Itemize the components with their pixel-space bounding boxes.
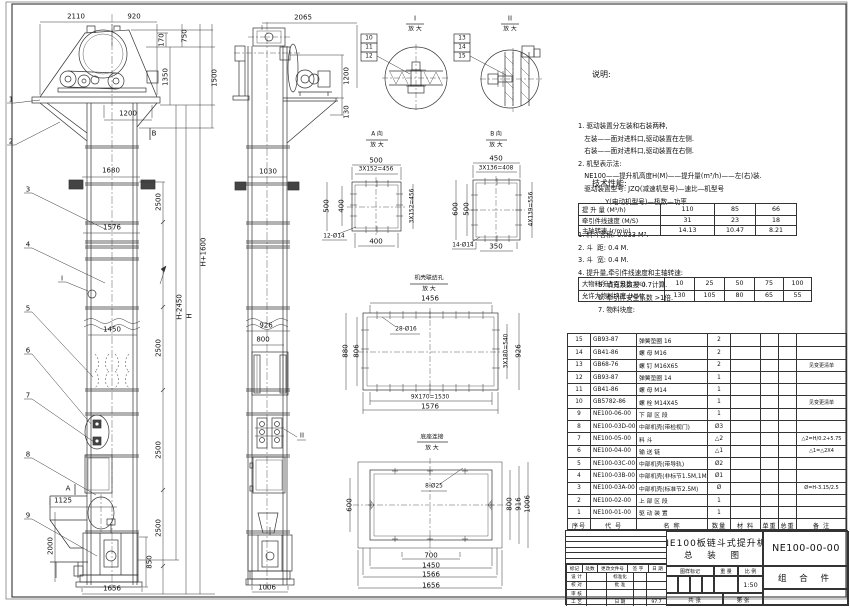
- dimension-label: 1576: [421, 404, 439, 411]
- bom-cell: [778, 494, 796, 506]
- sign-cell: [586, 581, 606, 590]
- section-A-view: [322, 140, 413, 248]
- bom-cell: Ø=H-3.15/2.5: [796, 482, 846, 494]
- bom-cell: 中部机壳(带导轨): [636, 457, 707, 469]
- dimension-label: 2500: [156, 519, 163, 537]
- bom-cell: [796, 371, 846, 383]
- dimension-label: 2: [9, 139, 13, 146]
- dimension-label: 880: [343, 344, 350, 357]
- dimension-label: 1125: [54, 498, 72, 505]
- table-cell: 大物料所占百分比 (%): [579, 278, 664, 290]
- bom-cell: [730, 445, 760, 457]
- bom-cell: 2: [707, 346, 730, 358]
- dimension-label: 3: [26, 187, 30, 194]
- bom-header-cell: 单重: [760, 518, 778, 530]
- dimension-label: 800: [256, 337, 269, 344]
- bom-cell: 1: [568, 506, 590, 518]
- bom-cell: [730, 334, 760, 346]
- dimension-label: A: [66, 486, 71, 493]
- bom-cell: NE100-03D-00: [590, 420, 636, 432]
- bom-cell: 6: [568, 445, 590, 457]
- bom-cell: [730, 482, 760, 494]
- drawing-sheet: 2110920170750135015001200B168025001576H+…: [0, 0, 850, 609]
- bom-cell: 螺 栓 M14X45: [636, 395, 707, 407]
- dimension-label: 920: [127, 14, 140, 21]
- bom-cell: [778, 371, 796, 383]
- sheet-number-label: 第 张: [723, 593, 763, 606]
- bom-cell: [796, 334, 846, 346]
- dimension-label: 916: [516, 497, 523, 510]
- bom-cell: [760, 408, 778, 420]
- dimension-label: I: [61, 276, 63, 283]
- bom-cell: NE100-03C-00: [590, 457, 636, 469]
- dimension-label: 放 大: [425, 446, 438, 453]
- bom-cell: 输 送 链: [636, 445, 707, 457]
- revision-header-cell: 签 字: [627, 564, 648, 572]
- dimension-label: 1656: [103, 586, 121, 593]
- table-cell: 10.47: [714, 225, 755, 236]
- bom-cell: [778, 408, 796, 420]
- bom-cell: [778, 469, 796, 481]
- bom-cell: 1: [707, 383, 730, 395]
- note-line: 1. 驱动装置分左装和右装两种,: [578, 120, 762, 133]
- sign-cell: 97.7: [646, 598, 666, 607]
- bom-cell: 弹簧垫圈 14: [636, 371, 707, 383]
- bom-cell: GB41-86: [590, 383, 636, 395]
- dimension-label: H: [187, 313, 194, 318]
- dimension-label: 5: [26, 306, 30, 313]
- dimension-label: 11: [365, 45, 372, 52]
- bom-cell: GB93-87: [590, 334, 636, 346]
- table-cell: 55: [783, 290, 811, 302]
- bom-cell: NE100-03B-00: [590, 469, 636, 481]
- bom-cell: [778, 346, 796, 358]
- revision-header-row: 标记处数更改文件号签 字日 期: [566, 564, 666, 572]
- bom-cell: 料 斗: [636, 432, 707, 444]
- bom-cell: Ø1: [707, 469, 730, 481]
- bom-header-cell: 备 注: [796, 518, 846, 530]
- table-cell: 100: [783, 278, 811, 290]
- sign-cell: [646, 572, 666, 581]
- bom-cell: [760, 371, 778, 383]
- side-elevation-view: [233, 22, 338, 590]
- dimension-label: 3X136=408: [479, 166, 514, 173]
- bom-cell: [796, 494, 846, 506]
- dimension-label: 1566: [422, 572, 440, 579]
- bom-cell: 13: [568, 359, 590, 371]
- bom-cell: [778, 359, 796, 371]
- bom-cell: 螺 母 M14: [636, 383, 707, 395]
- bom-cell: 弹簧垫圈 16: [636, 334, 707, 346]
- bom-cell: [760, 506, 778, 518]
- bom-cell: [796, 408, 846, 420]
- dimension-label: 9: [26, 513, 30, 520]
- bom-cell: 1: [707, 494, 730, 506]
- dimension-label: 14: [458, 45, 465, 52]
- scale-value: 1:50: [738, 576, 763, 593]
- dimension-label: H+1600: [201, 238, 208, 267]
- bom-cell: NE100-03A-00: [590, 482, 636, 494]
- dimension-label: 400: [369, 239, 382, 246]
- bom-cell: [760, 432, 778, 444]
- dimension-label: 1006: [525, 495, 532, 513]
- dimension-label: 1656: [422, 583, 440, 590]
- dimension-label: 放 大: [370, 143, 383, 150]
- sign-cell: [586, 589, 606, 598]
- dimension-label: 1500: [212, 69, 219, 87]
- dimension-label: 450: [489, 156, 502, 163]
- bom-cell: NE100-02-00: [590, 494, 636, 506]
- sign-cell: [646, 589, 666, 598]
- bom-cell: 10: [568, 395, 590, 407]
- table-cell: 105: [694, 290, 724, 302]
- dimension-label: 3X180=540: [504, 334, 511, 369]
- bom-cell: 1: [707, 506, 730, 518]
- bom-cell: 驱 动 装 置: [636, 506, 707, 518]
- sign-cell: 工 艺: [566, 598, 586, 607]
- bom-cell: NE100-04-00: [590, 445, 636, 457]
- bom-cell: NE100-06-00: [590, 408, 636, 420]
- product-title: NE100板链斗式提升机: [666, 536, 763, 549]
- bom-cell: 中部机壳(标准节2.5M): [636, 482, 707, 494]
- bom-cell: 11: [568, 383, 590, 395]
- sheets-total-label: 共 张: [666, 593, 723, 606]
- dimension-label: 600: [453, 202, 460, 215]
- table-cell: 31: [660, 215, 714, 226]
- table-cell: 50: [724, 278, 754, 290]
- mark-box-3: [690, 576, 702, 593]
- bom-cell: [796, 506, 846, 518]
- dimension-label: 500: [324, 199, 331, 212]
- bom-cell: [760, 395, 778, 407]
- sign-cell: 设 计: [566, 572, 586, 581]
- dimension-label: 926: [516, 344, 523, 357]
- dimension-label: 3X152=456: [359, 167, 394, 174]
- dimension-label: 170: [159, 33, 166, 46]
- bom-header-cell: 数量: [707, 518, 730, 530]
- bom-cell: [778, 457, 796, 469]
- dimension-label: 1450: [103, 327, 121, 334]
- bom-cell: [778, 420, 796, 432]
- bom-cell: [760, 383, 778, 395]
- sign-cell: [633, 598, 646, 607]
- dimension-label: 6: [26, 348, 30, 355]
- bom-cell: [796, 346, 846, 358]
- sign-cell: [633, 572, 646, 581]
- dimension-label: H-2450: [177, 294, 184, 320]
- bom-cell: [730, 457, 760, 469]
- bom-header-cell: 名 称: [636, 518, 707, 530]
- dimension-label: II: [508, 16, 512, 23]
- bill-of-materials-table: 15GB93-87弹簧垫圈 16214GB41-86螺 母 M16213GB68…: [567, 333, 847, 530]
- bom-cell: [796, 457, 846, 469]
- bom-cell: [730, 383, 760, 395]
- dimension-label: 350: [489, 244, 502, 251]
- bom-cell: Ø3: [707, 420, 730, 432]
- bom-cell: 2: [707, 359, 730, 371]
- bom-cell: [760, 346, 778, 358]
- dimension-label: 13: [458, 36, 465, 43]
- bom-cell: [778, 482, 796, 494]
- table-cell: 允许大物料块度 (MM): [579, 290, 664, 302]
- table-cell: 23: [714, 215, 755, 226]
- sign-row: 设 计标准化: [566, 572, 666, 581]
- bom-cell: [778, 432, 796, 444]
- bom-cell: 7: [568, 432, 590, 444]
- bom-cell: [760, 457, 778, 469]
- front-elevation-dimensions: [7, 22, 215, 594]
- sign-row: 校 对批 准: [566, 581, 666, 590]
- sign-cell: [633, 589, 646, 598]
- bom-header-cell: 序号: [568, 518, 590, 530]
- dimension-label: A 向: [371, 132, 383, 139]
- dimension-label: 1: [9, 97, 13, 104]
- bom-cell: △2=H/0.2+5.75: [796, 432, 846, 444]
- bom-cell: △1: [707, 445, 730, 457]
- table-cell: 110: [660, 204, 714, 215]
- bom-cell: 见变更清单: [796, 395, 846, 407]
- bom-cell: 4: [568, 469, 590, 481]
- bom-cell: 3: [568, 482, 590, 494]
- bom-header-cell: 材 料: [730, 518, 760, 530]
- front-elevation-view: [32, 14, 160, 590]
- drawing-title-box: NE100板链斗式提升机 总 装 图: [666, 531, 763, 566]
- dimension-label: 2000: [48, 537, 55, 555]
- dimension-label: 8-Ø25: [425, 484, 443, 491]
- bom-cell: [796, 469, 846, 481]
- dimension-label: 14-Ø14: [452, 243, 473, 250]
- bom-cell: [778, 395, 796, 407]
- bom-cell: 上 部 区 段: [636, 494, 707, 506]
- lump-size-table: 大物料所占百分比 (%)10255075100允许大物料块度 (MM)13010…: [578, 277, 812, 302]
- bom-cell: 1: [707, 395, 730, 407]
- dimension-label: 28-Ø16: [395, 327, 416, 334]
- bom-cell: 见变更清单: [796, 359, 846, 371]
- dimension-label: 放 大: [503, 27, 516, 34]
- drawing-type: 总 装 图: [684, 549, 745, 561]
- table-cell: 130: [664, 290, 694, 302]
- bom-cell: [760, 494, 778, 506]
- weight-label: 重 量: [714, 566, 738, 576]
- mark-box-4: [702, 576, 714, 593]
- bom-cell: △2: [707, 432, 730, 444]
- bom-cell: [730, 408, 760, 420]
- dimension-label: 1680: [102, 168, 120, 175]
- bom-cell: [730, 395, 760, 407]
- dimension-label: 放 大: [422, 287, 435, 294]
- bom-cell: 2: [568, 494, 590, 506]
- bom-cell: [778, 383, 796, 395]
- revision-header-cell: 处数: [582, 564, 597, 572]
- sign-cell: [646, 581, 666, 590]
- dimension-label: 400: [339, 199, 346, 212]
- sign-cell: 审 核: [566, 589, 586, 598]
- mark-label: 图样标记: [666, 566, 714, 576]
- dimension-label: 10: [365, 36, 372, 43]
- dimension-label: 4: [26, 242, 30, 249]
- tech-title: 技术性能:: [578, 177, 683, 191]
- bom-cell: [760, 359, 778, 371]
- bom-header-cell: 总重: [778, 518, 796, 530]
- dimension-label: 机壳联结孔: [415, 276, 444, 283]
- dimension-label: 放 大: [408, 27, 421, 34]
- bom-cell: [760, 469, 778, 481]
- dimension-label: 1006: [258, 585, 276, 592]
- bom-cell: [730, 494, 760, 506]
- dimension-label: 130: [344, 105, 351, 118]
- title-block: 标记处数更改文件号签 字日 期设 计标准化校 对批 准审 核工 艺日 期97.7…: [565, 530, 848, 605]
- bom-cell: 5: [568, 457, 590, 469]
- table-cell: 14.13: [660, 225, 714, 236]
- table-cell: 65: [754, 290, 783, 302]
- bom-cell: Ø: [707, 482, 730, 494]
- bom-cell: 9: [568, 408, 590, 420]
- mark-box-2: [678, 576, 690, 593]
- bom-cell: NE100-01-00: [590, 506, 636, 518]
- part-class-box: 组 合 件: [763, 566, 849, 589]
- dimension-label: 2065: [294, 15, 312, 22]
- mark-box-1: [666, 576, 678, 593]
- bom-cell: [730, 371, 760, 383]
- dimension-label: 500: [464, 202, 471, 215]
- dimension-label: I: [414, 16, 416, 23]
- dimension-label: 800: [507, 497, 514, 510]
- dimension-label: B 向: [490, 132, 502, 139]
- dimension-label: 926: [259, 323, 272, 330]
- bom-cell: 下 部 区 段: [636, 408, 707, 420]
- detail-II-view: [454, 24, 542, 112]
- table-cell: 85: [714, 204, 755, 215]
- sign-cell: [586, 572, 606, 581]
- sign-row: 审 核: [566, 589, 666, 598]
- bom-cell: GB41-86: [590, 346, 636, 358]
- table-cell: 66: [755, 204, 796, 215]
- bom-cell: [760, 445, 778, 457]
- dimension-label: 12-Ø14: [323, 234, 344, 241]
- bom-cell: [760, 482, 778, 494]
- bom-cell: 8: [568, 420, 590, 432]
- dimension-label: B: [152, 131, 157, 138]
- sign-cell: 校 对: [566, 581, 586, 590]
- bom-cell: [760, 420, 778, 432]
- bom-cell: [796, 383, 846, 395]
- bom-cell: 中部机壳(非标节1.5M,1M): [636, 469, 707, 481]
- bom-cell: 螺 钉 M16X65: [636, 359, 707, 371]
- table-cell: 8.21: [755, 225, 796, 236]
- dimension-label: 850: [147, 555, 154, 568]
- table-cell: 25: [694, 278, 724, 290]
- bom-cell: GB68-76: [590, 359, 636, 371]
- bom-cell: [730, 432, 760, 444]
- dimension-label: 1200: [119, 111, 137, 118]
- bom-cell: [730, 359, 760, 371]
- dimension-label: 600: [347, 498, 354, 511]
- dimension-label: 8: [26, 452, 30, 459]
- dimension-label: 3X152=456: [410, 189, 417, 224]
- bom-cell: 2: [707, 334, 730, 346]
- bom-cell: [730, 469, 760, 481]
- bom-cell: GB5782-86: [590, 395, 636, 407]
- dimension-label: 9X170=1530: [411, 395, 449, 402]
- table-cell: 75: [754, 278, 783, 290]
- bom-cell: [778, 506, 796, 518]
- drawing-number-box: NE100-00-00: [763, 531, 849, 566]
- dimension-label: 700: [424, 553, 437, 560]
- note-line: 7. 物料块度:: [598, 304, 673, 317]
- bom-cell: [778, 334, 796, 346]
- bom-header-cell: 代 号: [590, 518, 636, 530]
- bom-cell: [796, 420, 846, 432]
- dimension-label: 2500: [156, 193, 163, 211]
- sign-cell: [586, 598, 606, 607]
- bom-cell: [760, 334, 778, 346]
- bom-cell: 12: [568, 371, 590, 383]
- sign-cell: 批 准: [606, 581, 633, 590]
- table-cell: 18: [755, 215, 796, 226]
- revision-header-cell: 更改文件号: [597, 564, 627, 572]
- sign-row: 工 艺日 期97.7: [566, 598, 666, 607]
- side-elevation-dimensions: [246, 23, 357, 592]
- dimension-label: 1200: [344, 67, 351, 85]
- dimension-label: 1350: [163, 68, 170, 86]
- detail-I-view: [361, 24, 450, 112]
- dimension-label: 12: [365, 54, 372, 61]
- bom-cell: △1=△2X4: [796, 445, 846, 457]
- dimension-label: 2500: [156, 441, 163, 459]
- dimension-label: 7: [26, 393, 30, 400]
- dimension-label: 2110: [67, 14, 85, 21]
- bom-cell: 1: [707, 371, 730, 383]
- sign-cell: [633, 581, 646, 590]
- bom-cell: [778, 445, 796, 457]
- bom-cell: 14: [568, 346, 590, 358]
- dimension-label: 15: [458, 54, 465, 61]
- bom-cell: 螺 母 M16: [636, 346, 707, 358]
- table-cell: 主轴转速 (r/min): [579, 225, 660, 236]
- weight-value-box: [714, 576, 738, 593]
- notes-title: 说明:: [578, 68, 762, 82]
- dimension-label: 1450: [422, 563, 440, 570]
- empty-box: [763, 589, 849, 606]
- bom-cell: NE100-05-00: [590, 432, 636, 444]
- revision-sign-area: 标记处数更改文件号签 字日 期设 计标准化校 对批 准审 核工 艺日 期97.7: [566, 531, 666, 606]
- dimension-label: 底座连接: [420, 435, 443, 442]
- table-cell: 80: [724, 290, 754, 302]
- revision-header-cell: 日 期: [648, 564, 666, 572]
- dimension-label: 放 大: [489, 143, 502, 150]
- bom-cell: 中部机壳(带检视门): [636, 420, 707, 432]
- bom-cell: 1: [707, 408, 730, 420]
- sign-cell: 标准化: [606, 572, 633, 581]
- sign-cell: 日 期: [606, 598, 633, 607]
- bom-cell: [730, 420, 760, 432]
- bom-cell: [730, 346, 760, 358]
- table-cell: 10: [664, 278, 694, 290]
- dimension-label: 806: [354, 344, 361, 357]
- bom-cell: 15: [568, 334, 590, 346]
- revision-header-cell: 标记: [566, 564, 582, 572]
- capacity-speed-table: 提 升 量 (M³/h)1108566牵引件线速度 (M/S)312318主轴转…: [578, 203, 797, 236]
- dimension-label: II: [300, 433, 304, 440]
- bom-cell: [730, 506, 760, 518]
- scale-label: 比 例: [738, 566, 763, 576]
- table-cell: 牵引件线速度 (M/S): [579, 215, 660, 226]
- bom-cell: GB93-87: [590, 371, 636, 383]
- dimension-label: 4X139=556: [529, 192, 536, 227]
- table-cell: 提 升 量 (M³/h): [579, 204, 660, 215]
- dimension-label: 750: [182, 29, 189, 42]
- sign-cell: [606, 589, 633, 598]
